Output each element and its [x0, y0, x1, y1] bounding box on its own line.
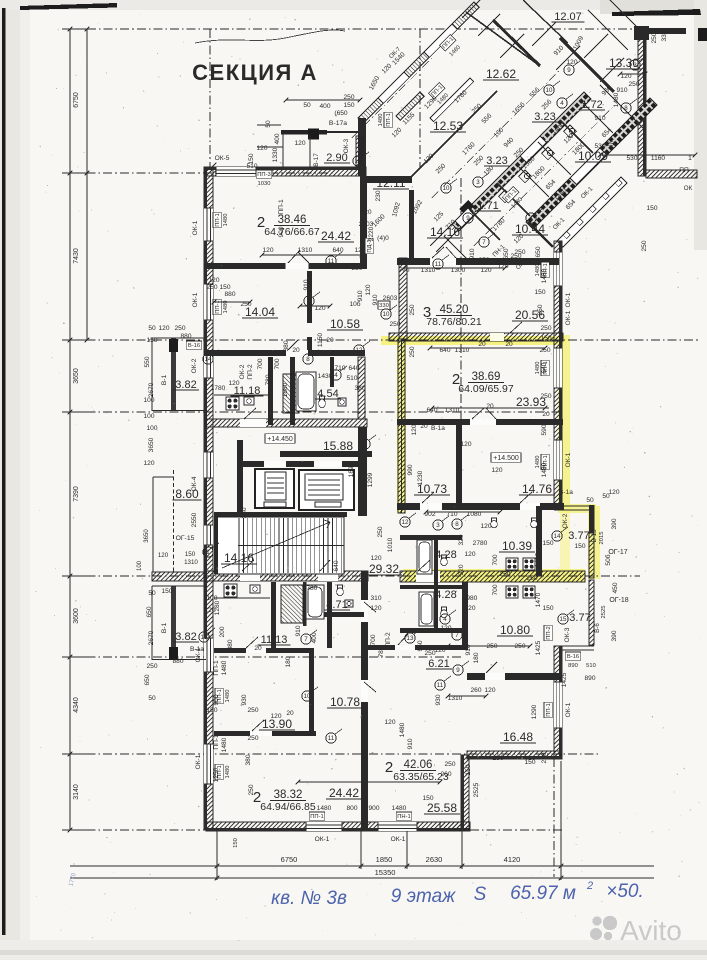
- svg-text:250: 250: [606, 141, 617, 148]
- svg-text:640: 640: [541, 362, 548, 373]
- svg-text:1480: 1480: [399, 722, 406, 737]
- svg-text:530: 530: [594, 143, 605, 150]
- svg-text:4.54: 4.54: [317, 388, 338, 400]
- svg-text:3.77: 3.77: [568, 530, 589, 542]
- svg-text:8: 8: [455, 521, 459, 528]
- svg-text:1480: 1480: [378, 114, 384, 127]
- svg-text:ОК-2: ОК-2: [562, 513, 569, 528]
- svg-text:250: 250: [499, 571, 510, 578]
- svg-text:11: 11: [328, 258, 335, 265]
- svg-text:530: 530: [626, 155, 637, 162]
- svg-text:ОК-1: ОК-1: [391, 836, 406, 843]
- svg-text:330: 330: [661, 30, 668, 41]
- svg-text:14: 14: [554, 533, 561, 540]
- svg-text:20: 20: [326, 337, 334, 344]
- svg-text:ПП-2: ПП-2: [546, 626, 552, 640]
- svg-text:1480: 1480: [317, 805, 332, 812]
- svg-text:150: 150: [524, 759, 535, 766]
- svg-text:+14.500: +14.500: [493, 455, 519, 462]
- svg-text:2015: 2015: [599, 532, 605, 545]
- svg-text:В-17: В-17: [313, 153, 320, 167]
- svg-text:50б: 50б: [604, 554, 612, 565]
- svg-text:В-16: В-16: [188, 343, 200, 349]
- svg-text:700: 700: [492, 554, 499, 565]
- svg-text:150: 150: [343, 102, 354, 109]
- svg-text:1470: 1470: [535, 592, 542, 607]
- svg-text:В-16: В-16: [567, 654, 579, 660]
- svg-text:3650: 3650: [148, 437, 155, 452]
- svg-text:120: 120: [208, 277, 219, 284]
- svg-text:Avito: Avito: [620, 915, 682, 946]
- svg-text:120: 120: [158, 552, 169, 559]
- svg-text:ОК-2: ОК-2: [239, 364, 246, 379]
- svg-text:150: 150: [574, 543, 585, 550]
- svg-text:12.11: 12.11: [376, 176, 405, 190]
- svg-text:20: 20: [478, 341, 486, 348]
- svg-text:1480: 1480: [225, 766, 231, 779]
- svg-text:120: 120: [143, 460, 154, 467]
- svg-text:2603: 2603: [359, 221, 374, 228]
- svg-text:1850: 1850: [376, 855, 393, 864]
- svg-text:700: 700: [274, 358, 281, 369]
- svg-text:В-17а: В-17а: [329, 120, 347, 127]
- svg-text:8: 8: [306, 356, 310, 363]
- svg-text:250: 250: [514, 643, 525, 650]
- svg-text:12.62: 12.62: [486, 67, 516, 81]
- svg-text:7: 7: [304, 636, 308, 643]
- svg-text:3.77: 3.77: [569, 612, 590, 624]
- svg-text:12.53: 12.53: [433, 119, 463, 133]
- svg-text:450: 450: [612, 582, 619, 593]
- svg-text:380: 380: [354, 385, 365, 392]
- svg-text:150: 150: [233, 838, 239, 848]
- svg-text:3: 3: [476, 179, 480, 186]
- svg-text:910: 910: [616, 87, 627, 94]
- svg-text:640: 640: [332, 247, 343, 254]
- svg-text:4340: 4340: [73, 697, 80, 713]
- svg-text:7390: 7390: [73, 486, 80, 502]
- svg-text:ПП-1: ПП-1: [213, 734, 220, 750]
- svg-text:2780: 2780: [473, 540, 488, 547]
- svg-text:120: 120: [360, 209, 371, 216]
- svg-text:150: 150: [161, 588, 172, 595]
- svg-text:В-13: В-13: [591, 529, 598, 543]
- svg-text:400: 400: [311, 632, 318, 643]
- svg-text:4: 4: [529, 215, 533, 222]
- svg-text:10: 10: [383, 311, 390, 318]
- svg-text:390: 390: [611, 518, 618, 529]
- svg-text:1: 1: [688, 155, 692, 162]
- svg-text:В-6: В-6: [594, 623, 601, 633]
- svg-text:СЕКЦИЯ А: СЕКЦИЯ А: [192, 60, 318, 85]
- svg-text:кв. № 3в: кв. № 3в: [271, 888, 347, 909]
- svg-text:9: 9: [567, 67, 571, 74]
- svg-text:890: 890: [584, 675, 595, 682]
- svg-text:1425: 1425: [535, 640, 542, 655]
- svg-text:В-1: В-1: [161, 623, 168, 634]
- svg-text:950: 950: [417, 640, 424, 651]
- svg-text:10.58: 10.58: [330, 317, 360, 331]
- svg-text:250: 250: [541, 752, 548, 763]
- svg-text:1480: 1480: [223, 214, 229, 227]
- svg-text:120: 120: [294, 140, 305, 147]
- svg-text:1250: 1250: [213, 767, 220, 782]
- svg-text:3600: 3600: [73, 608, 80, 624]
- svg-text:150: 150: [542, 605, 553, 612]
- svg-text:880: 880: [172, 658, 183, 665]
- svg-text:38.32: 38.32: [274, 789, 303, 801]
- svg-text:250: 250: [537, 304, 544, 315]
- svg-text:ОК-1: ОК-1: [195, 754, 202, 769]
- svg-text:10.39: 10.39: [502, 539, 532, 553]
- svg-text:120: 120: [434, 647, 445, 654]
- svg-text:ПП: ПП: [679, 167, 689, 174]
- svg-text:120: 120: [464, 605, 475, 612]
- svg-text:250: 250: [540, 325, 551, 332]
- svg-text:250: 250: [247, 707, 258, 714]
- svg-text:200: 200: [219, 626, 226, 637]
- svg-text:180: 180: [285, 656, 292, 667]
- svg-text:ОК-2: ОК-2: [191, 358, 198, 373]
- svg-text:180: 180: [473, 652, 480, 663]
- svg-text:250: 250: [486, 643, 497, 650]
- svg-text:120: 120: [491, 467, 502, 474]
- svg-text:1425: 1425: [561, 672, 568, 687]
- svg-text:150: 150: [206, 707, 217, 714]
- svg-text:45.20: 45.20: [440, 304, 469, 316]
- svg-text:120: 120: [365, 284, 372, 295]
- svg-text:1980: 1980: [463, 595, 478, 602]
- svg-text:ОК-3: ОК-3: [564, 627, 571, 642]
- svg-text:250: 250: [641, 240, 648, 251]
- svg-text:150: 150: [146, 337, 157, 344]
- svg-text:250: 250: [540, 393, 551, 400]
- svg-text:2525: 2525: [601, 606, 607, 619]
- svg-text:1480: 1480: [221, 737, 228, 752]
- svg-text:650: 650: [146, 606, 153, 617]
- svg-text:120: 120: [411, 424, 418, 435]
- svg-text:ОК: ОК: [684, 185, 693, 192]
- svg-text:38.46: 38.46: [278, 214, 307, 226]
- svg-text:400: 400: [319, 103, 330, 110]
- svg-text:11: 11: [437, 682, 444, 689]
- svg-text:12.07: 12.07: [554, 11, 582, 23]
- svg-text:64.76/66.67: 64.76/66.67: [264, 226, 320, 238]
- svg-text:510: 510: [346, 375, 357, 382]
- svg-text:100: 100: [143, 397, 154, 404]
- svg-text:11: 11: [435, 261, 442, 268]
- svg-text:3.82: 3.82: [175, 379, 196, 391]
- svg-text:900: 900: [213, 694, 220, 705]
- svg-text:10: 10: [546, 87, 553, 94]
- svg-text:В-1а: В-1а: [431, 425, 445, 432]
- svg-text:250: 250: [444, 761, 455, 768]
- svg-text:ПП-1: ПП-1: [215, 213, 221, 227]
- svg-text:150: 150: [534, 289, 545, 296]
- svg-text:150: 150: [422, 795, 433, 802]
- svg-text:20: 20: [486, 403, 494, 410]
- svg-text:120: 120: [460, 441, 471, 448]
- svg-text:1780: 1780: [211, 385, 226, 392]
- svg-text:1480: 1480: [221, 660, 228, 675]
- svg-text:250: 250: [651, 32, 658, 43]
- svg-text:330: 330: [379, 303, 389, 309]
- svg-text:900: 900: [368, 805, 379, 812]
- svg-text:1.71: 1.71: [477, 200, 498, 212]
- svg-text:15: 15: [560, 616, 567, 623]
- svg-text:10: 10: [443, 185, 450, 192]
- svg-text:2220: 2220: [368, 226, 375, 241]
- svg-text:700: 700: [257, 358, 264, 369]
- svg-text:50: 50: [265, 120, 272, 128]
- svg-text:120: 120: [480, 523, 491, 530]
- svg-text:2670: 2670: [148, 382, 155, 397]
- svg-text:12: 12: [402, 519, 409, 526]
- svg-text:6750: 6750: [281, 855, 298, 864]
- svg-text:1330: 1330: [272, 147, 279, 162]
- svg-text:930: 930: [241, 694, 248, 705]
- svg-text:120: 120: [608, 489, 619, 496]
- svg-text:+14.450: +14.450: [267, 436, 293, 443]
- svg-text:910: 910: [469, 248, 476, 259]
- svg-text:2525: 2525: [473, 782, 480, 797]
- svg-text:10.09: 10.09: [578, 149, 608, 163]
- svg-text:7: 7: [455, 632, 459, 639]
- svg-text:150: 150: [465, 764, 472, 775]
- svg-text:120: 120: [158, 325, 169, 332]
- svg-text:1030: 1030: [258, 181, 271, 187]
- svg-text:1480: 1480: [225, 690, 231, 703]
- svg-text:880: 880: [224, 291, 235, 298]
- svg-text:100: 100: [146, 425, 157, 432]
- svg-text:150: 150: [185, 551, 196, 558]
- svg-text:250: 250: [248, 784, 255, 795]
- svg-text:4: 4: [560, 100, 564, 107]
- svg-text:29.32: 29.32: [369, 562, 399, 576]
- svg-text:1280: 1280: [214, 600, 221, 615]
- svg-text:16.48: 16.48: [503, 730, 533, 744]
- svg-text:250: 250: [409, 346, 416, 357]
- svg-text:650: 650: [144, 674, 151, 685]
- svg-text:20: 20: [505, 341, 513, 348]
- svg-text:50: 50: [148, 325, 156, 332]
- svg-text:S: S: [474, 884, 487, 905]
- svg-text:640: 640: [333, 560, 340, 571]
- svg-text:250: 250: [526, 575, 537, 582]
- svg-text:ОК-5: ОК-5: [215, 155, 230, 162]
- svg-text:2550: 2550: [191, 512, 198, 527]
- svg-text:ПП-1: ПП-1: [310, 814, 324, 820]
- svg-text:ПП-1: ПП-1: [386, 113, 392, 127]
- svg-text:550: 550: [144, 356, 151, 367]
- svg-text:20: 20: [542, 411, 550, 418]
- svg-text:910: 910: [407, 738, 414, 749]
- svg-text:1480: 1480: [223, 301, 229, 314]
- svg-text:ОГ-18: ОГ-18: [609, 597, 628, 604]
- svg-text:150: 150: [540, 335, 551, 342]
- svg-text:1310: 1310: [184, 559, 198, 566]
- svg-text:9 этаж: 9 этаж: [391, 886, 456, 907]
- svg-text:120: 120: [440, 625, 451, 632]
- svg-text:9: 9: [307, 298, 311, 305]
- svg-text:1435: 1435: [535, 552, 542, 567]
- svg-text:910: 910: [295, 625, 302, 636]
- svg-text:250: 250: [514, 249, 525, 256]
- svg-text:150: 150: [646, 205, 657, 212]
- svg-text:880: 880: [180, 333, 191, 340]
- svg-text:14.76: 14.76: [522, 482, 552, 496]
- svg-text:650: 650: [535, 246, 542, 257]
- svg-text:120: 120: [270, 713, 281, 720]
- svg-text:1290: 1290: [531, 704, 538, 719]
- svg-text:4: 4: [443, 616, 447, 623]
- svg-text:65.97 м: 65.97 м: [510, 883, 576, 904]
- svg-text:25.58: 25.58: [427, 801, 457, 815]
- svg-text:15.88: 15.88: [323, 439, 353, 453]
- svg-text:1010: 1010: [387, 537, 394, 552]
- svg-text:1299: 1299: [367, 472, 374, 487]
- svg-text:250: 250: [478, 257, 489, 264]
- svg-text:120: 120: [370, 555, 381, 562]
- svg-text:250: 250: [389, 321, 400, 328]
- svg-text:3140: 3140: [73, 784, 80, 800]
- svg-text:64.09/65.97: 64.09/65.97: [458, 383, 514, 395]
- svg-text:3: 3: [633, 62, 637, 69]
- svg-text:ОК-1: ОК-1: [565, 292, 572, 307]
- svg-text:2: 2: [385, 759, 393, 776]
- svg-text:ПП-1: ПП-1: [546, 703, 552, 717]
- svg-text:3: 3: [436, 522, 440, 529]
- svg-text:ПП-2: ПП-2: [385, 632, 392, 648]
- svg-text:3650: 3650: [73, 368, 80, 384]
- svg-text:ПП-1: ПП-1: [278, 199, 285, 215]
- svg-text:910: 910: [594, 115, 605, 122]
- svg-text:910: 910: [372, 294, 379, 305]
- svg-text:1.72: 1.72: [581, 99, 602, 111]
- svg-text:2630: 2630: [426, 855, 443, 864]
- svg-text:6.21: 6.21: [428, 658, 449, 670]
- svg-text:14: 14: [205, 356, 212, 363]
- svg-text:ОК-4: ОК-4: [191, 476, 198, 491]
- svg-text:250: 250: [492, 755, 503, 762]
- svg-text:1430: 1430: [318, 373, 333, 380]
- svg-text:ОГ-15: ОГ-15: [176, 535, 195, 542]
- svg-text:15350: 15350: [375, 868, 396, 877]
- svg-text:42.06: 42.06: [404, 759, 433, 771]
- svg-text:650: 650: [503, 248, 510, 259]
- svg-text:250: 250: [247, 735, 258, 742]
- svg-text:15: 15: [201, 634, 208, 641]
- svg-text:12: 12: [356, 347, 363, 354]
- svg-text:800: 800: [346, 805, 357, 812]
- svg-text:780: 780: [265, 374, 272, 385]
- svg-text:13: 13: [407, 635, 414, 642]
- svg-text:ОК-1: ОК-1: [315, 836, 330, 843]
- svg-text:250: 250: [409, 304, 416, 315]
- svg-text:24.42: 24.42: [329, 786, 359, 800]
- svg-text:890: 890: [568, 663, 578, 669]
- svg-text:310: 310: [370, 595, 381, 602]
- svg-text:150: 150: [542, 540, 553, 547]
- svg-text:120: 120: [384, 719, 395, 726]
- svg-text:ОК-1: ОК-1: [565, 452, 572, 467]
- svg-text:4.28: 4.28: [435, 589, 456, 601]
- svg-text:3.82: 3.82: [175, 631, 196, 643]
- svg-text:930: 930: [435, 694, 442, 705]
- svg-text:10: 10: [304, 693, 311, 700]
- svg-text:24.42: 24.42: [321, 229, 351, 243]
- svg-text:510: 510: [246, 163, 257, 170]
- svg-text:20: 20: [420, 423, 428, 430]
- svg-text:2670: 2670: [148, 630, 155, 645]
- svg-text:50: 50: [148, 590, 156, 597]
- svg-text:В-1а: В-1а: [190, 646, 204, 653]
- svg-text:590: 590: [541, 424, 548, 435]
- svg-text:700: 700: [492, 584, 499, 595]
- svg-text:1880: 1880: [282, 382, 289, 397]
- svg-text:100: 100: [137, 560, 143, 571]
- svg-text:640: 640: [348, 365, 359, 372]
- svg-text:7430: 7430: [73, 248, 80, 264]
- svg-text:10.78: 10.78: [330, 695, 360, 709]
- svg-text:120: 120: [256, 145, 267, 152]
- svg-text:78.76/80.21: 78.76/80.21: [426, 316, 482, 328]
- svg-text:4120: 4120: [504, 855, 521, 864]
- svg-text:4.71: 4.71: [326, 599, 347, 611]
- svg-text:ПН-1: ПН-1: [397, 814, 411, 820]
- svg-text:1160: 1160: [651, 155, 666, 162]
- svg-text:4.28: 4.28: [435, 549, 456, 561]
- svg-text:11: 11: [328, 735, 335, 742]
- svg-text:380: 380: [283, 340, 290, 351]
- svg-text:3650: 3650: [144, 529, 150, 543]
- svg-text:1480: 1480: [541, 462, 548, 477]
- svg-text:2780: 2780: [303, 585, 318, 592]
- svg-text:1480: 1480: [613, 92, 620, 107]
- svg-text:В-1а: В-1а: [559, 489, 573, 496]
- svg-text:50: 50: [303, 102, 311, 109]
- svg-text:700: 700: [370, 634, 377, 645]
- svg-text:×50.: ×50.: [606, 881, 644, 902]
- svg-text:100: 100: [143, 413, 154, 420]
- svg-text:250: 250: [146, 663, 157, 670]
- svg-text:ПП-3: ПП-3: [257, 172, 271, 178]
- svg-text:400: 400: [274, 133, 281, 144]
- svg-text:320: 320: [458, 564, 465, 575]
- svg-text:10.80: 10.80: [500, 623, 530, 637]
- svg-text:1480: 1480: [541, 268, 548, 283]
- svg-text:120: 120: [228, 380, 239, 387]
- svg-text:9: 9: [466, 215, 470, 222]
- svg-text:320: 320: [458, 534, 465, 545]
- svg-text:250: 250: [628, 81, 639, 88]
- svg-text:9: 9: [456, 667, 460, 674]
- svg-text:250: 250: [174, 325, 185, 332]
- svg-text:120: 120: [484, 687, 495, 694]
- svg-text:510: 510: [586, 663, 596, 669]
- svg-text:780: 780: [378, 646, 385, 657]
- svg-text:710: 710: [334, 365, 345, 372]
- svg-text:ОК-1: ОК-1: [192, 220, 199, 235]
- svg-text:1150: 1150: [317, 333, 324, 348]
- svg-text:230: 230: [375, 190, 382, 201]
- svg-text:120: 120: [566, 59, 577, 66]
- svg-text:1480: 1480: [392, 805, 407, 812]
- svg-text:50: 50: [148, 695, 156, 702]
- svg-text:2: 2: [363, 441, 367, 448]
- svg-text:250: 250: [377, 526, 384, 537]
- svg-text:20: 20: [292, 347, 300, 354]
